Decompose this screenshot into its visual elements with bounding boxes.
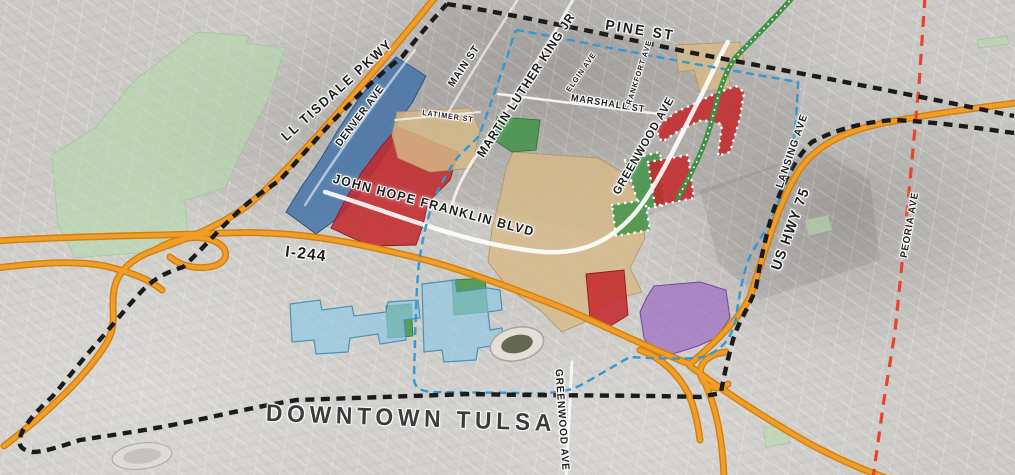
map-overlay-svg bbox=[0, 0, 1015, 475]
map-viewport[interactable]: LL TISDALE PKWY PINE ST MAIN ST MARTIN L… bbox=[0, 0, 1015, 475]
expo-arena bbox=[111, 439, 174, 472]
ramp-west bbox=[0, 263, 162, 290]
park-golf-course bbox=[52, 32, 285, 258]
park-small-northeast bbox=[977, 36, 1009, 48]
zone-lightblue-downtown-west bbox=[290, 300, 420, 354]
peoria-ave-red-dashed bbox=[873, 0, 925, 475]
